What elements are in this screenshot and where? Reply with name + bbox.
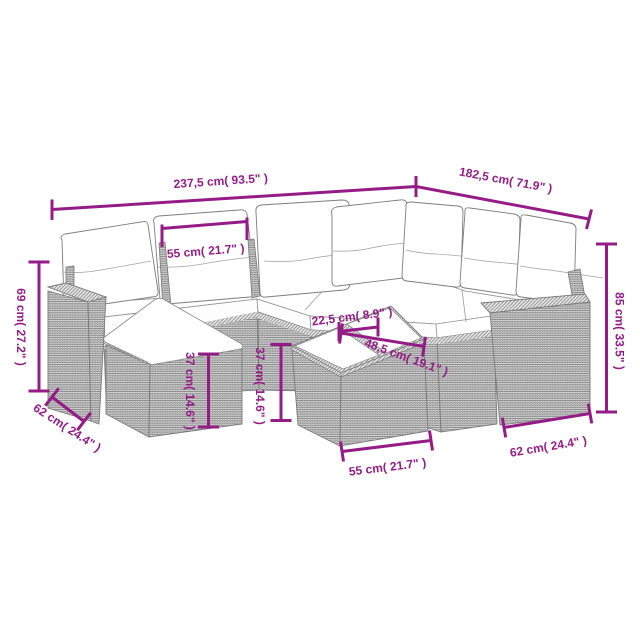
svg-text:85 cm( 33.5" ): 85 cm( 33.5" ) <box>613 292 627 370</box>
svg-text:37 cm( 14.6" ): 37 cm( 14.6" ) <box>183 352 197 430</box>
svg-text:69 cm( 27.2" ): 69 cm( 27.2" ) <box>14 288 28 366</box>
svg-text:37 cm( 14.6" ): 37 cm( 14.6" ) <box>253 347 267 425</box>
